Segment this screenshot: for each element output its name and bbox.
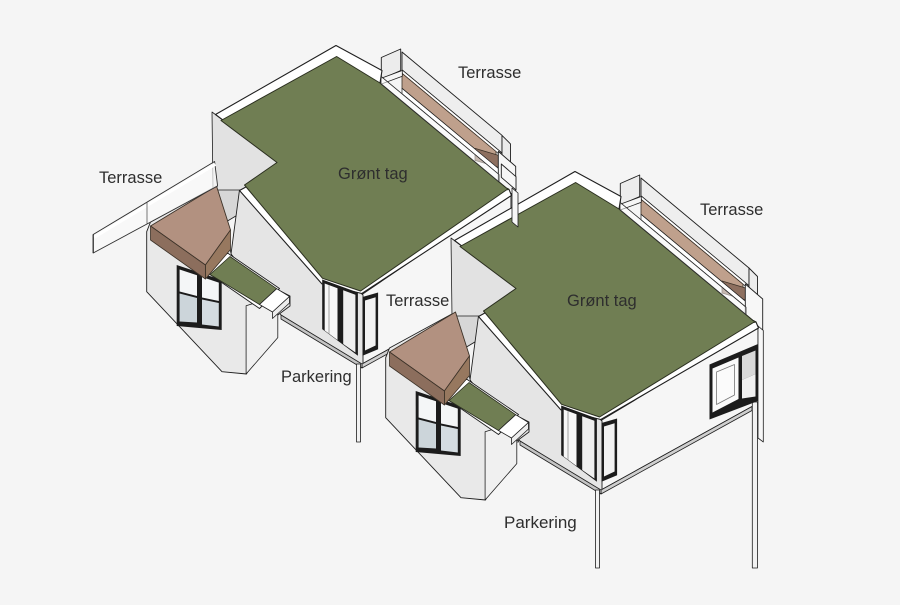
svg-text:Grønt tag: Grønt tag [338,165,408,183]
svg-text:Parkering: Parkering [504,513,577,532]
svg-text:Parkering: Parkering [281,368,352,386]
svg-text:Grønt tag: Grønt tag [567,292,637,310]
svg-text:Terrasse: Terrasse [99,169,162,187]
svg-text:Terrasse: Terrasse [386,292,449,310]
svg-text:Terrasse: Terrasse [700,201,763,219]
svg-text:Terrasse: Terrasse [458,64,521,82]
